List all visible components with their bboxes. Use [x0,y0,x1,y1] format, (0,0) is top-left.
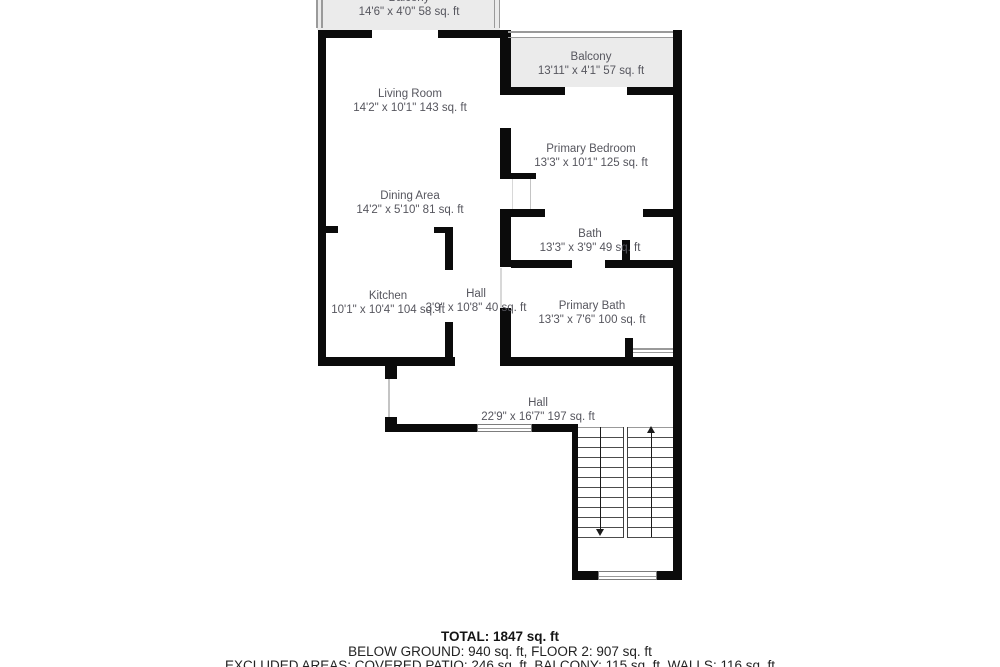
room-label-primary-bath: Primary Bath 13'3" x 7'6" 100 sq. ft [538,299,645,327]
room-label-living-room: Living Room 14'2" x 10'1" 143 sq. ft [353,87,467,115]
balcony-railing [508,31,673,33]
room-label-dining-area: Dining Area 14'2" x 5'10" 81 sq. ft [356,189,463,217]
balcony-railing [494,0,496,28]
fixture-line [633,348,673,350]
wall [385,357,397,379]
room-dims: 3'9" x 10'8" 40 sq. ft [426,301,527,315]
balcony-railing [321,0,323,28]
wall [500,87,565,95]
room-dims: 14'2" x 5'10" 81 sq. ft [356,203,463,217]
room-name: Primary Bedroom [534,142,648,156]
stairs-down-arrow-line [600,427,601,531]
room-dims: 22'9" x 16'7" 197 sq. ft [481,410,595,424]
room-label-balcony-top: Balcony 14'6" x 4'0" 58 sq. ft [359,0,460,19]
window [477,424,532,432]
room-label-balcony-right: Balcony 13'11" x 4'1" 57 sq. ft [538,50,644,78]
room-dims: 13'11" x 4'1" 57 sq. ft [538,64,644,78]
wall [511,260,572,268]
wall [673,30,682,580]
room-name: Living Room [353,87,467,101]
wall [657,571,682,580]
wall [500,128,511,173]
opening-line [388,379,390,417]
wall [445,322,453,366]
balcony-railing [508,37,673,39]
room-name: Dining Area [356,189,463,203]
summary-floors: BELOW GROUND: 940 sq. ft, FLOOR 2: 907 s… [0,645,1000,659]
room-name: Hall [426,287,527,301]
balcony-railing [499,0,501,28]
room-dims: 14'6" x 4'0" 58 sq. ft [359,5,460,19]
wall [605,260,682,268]
closet-door-line [530,179,532,209]
stairs-down-arrow-icon [596,529,604,536]
window [598,571,657,580]
wall [318,30,372,38]
wall [511,357,682,366]
wall [643,209,682,217]
summary-excluded: EXCLUDED AREAS: COVERED PATIO: 246 sq. f… [0,659,1000,667]
room-dims: 13'3" x 10'1" 125 sq. ft [534,156,648,170]
room-label-hall-lower: Hall 22'9" x 16'7" 197 sq. ft [481,396,595,424]
room-dims: 13'3" x 3'9" 49 sq. ft [540,241,641,255]
summary-total: TOTAL: 1847 sq. ft [0,630,1000,644]
room-label-hall-upper: Hall 3'9" x 10'8" 40 sq. ft [426,287,527,315]
wall [385,424,477,432]
balcony-railing [316,0,318,28]
wall [500,308,511,366]
floor-plan-canvas: Balcony 14'6" x 4'0" 58 sq. ft Living Ro… [0,0,1000,667]
wall-stub [326,226,338,233]
wall [318,30,326,366]
room-name: Balcony [538,50,644,64]
room-label-primary-bedroom: Primary Bedroom 13'3" x 10'1" 125 sq. ft [534,142,648,170]
room-name: Primary Bath [538,299,645,313]
room-name: Hall [481,396,595,410]
room-label-bath: Bath 13'3" x 3'9" 49 sq. ft [540,227,641,255]
wall [627,87,673,95]
room-dims: 13'3" x 7'6" 100 sq. ft [538,313,645,327]
closet-line [512,179,513,209]
wall [572,571,598,580]
room-dims: 14'2" x 10'1" 143 sq. ft [353,101,467,115]
wall-stub [625,338,633,365]
stairs-up-arrow-icon [647,426,655,433]
wall [500,30,511,93]
room-name: Bath [540,227,641,241]
wall [500,215,511,267]
stairs-up-arrow-line [651,430,652,537]
wall [445,227,453,270]
fixture-line [633,352,673,354]
